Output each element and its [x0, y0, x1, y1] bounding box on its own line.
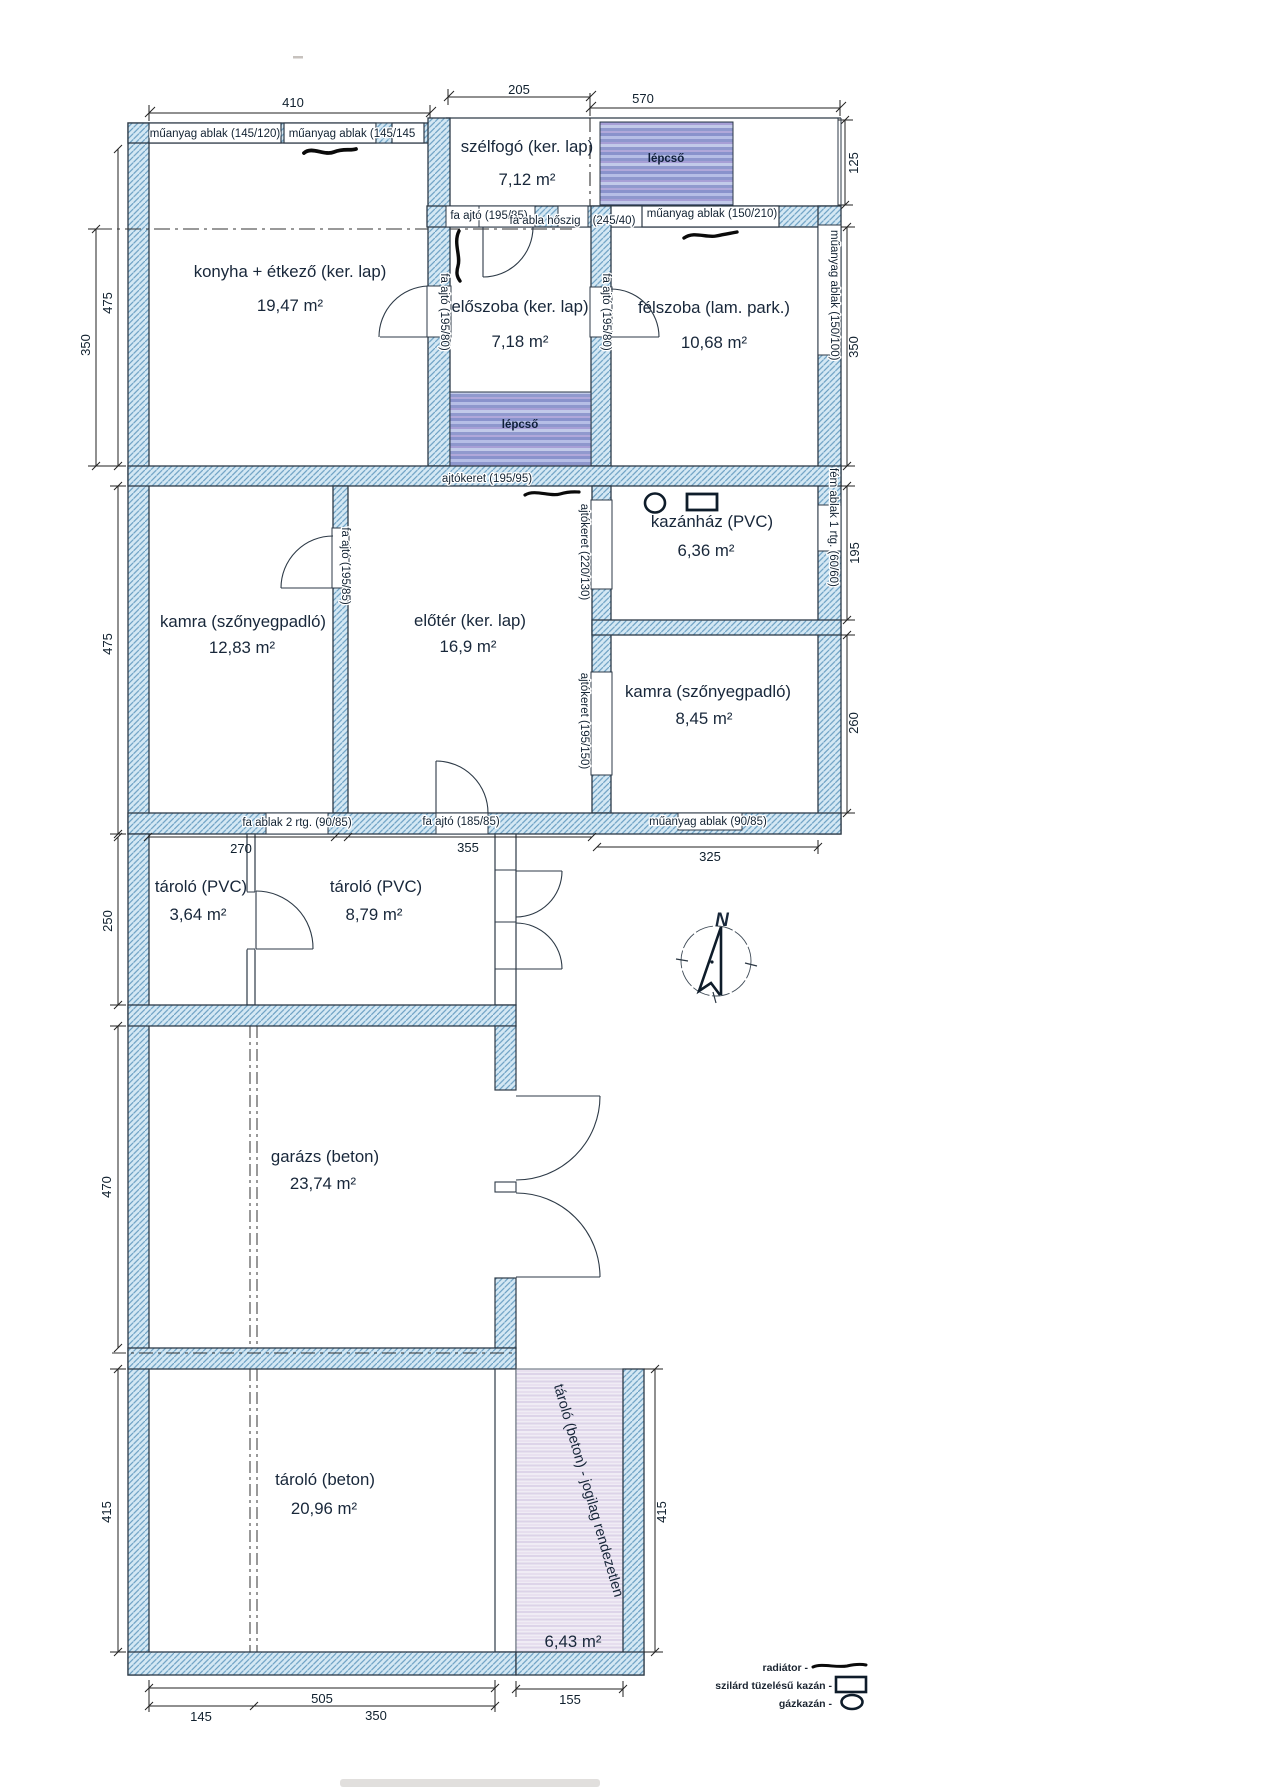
svg-text:8,79 m²: 8,79 m² [346, 905, 403, 924]
svg-text:félszoba (lam. park.): félszoba (lam. park.) [638, 298, 790, 317]
svg-text:gázkazán -: gázkazán - [779, 1698, 833, 1710]
svg-text:475: 475 [100, 633, 115, 655]
svg-text:fa ajtó (195/85): fa ajtó (195/85) [339, 527, 351, 605]
svg-text:konyha + étkező (ker. lap): konyha + étkező (ker. lap) [194, 262, 387, 281]
svg-text:szélfogó (ker. lap): szélfogó (ker. lap) [461, 137, 593, 156]
svg-text:415: 415 [99, 1501, 114, 1523]
svg-text:20,96 m²: 20,96 m² [291, 1499, 358, 1518]
svg-text:előtér (ker. lap): előtér (ker. lap) [414, 611, 526, 630]
svg-text:350: 350 [78, 334, 93, 356]
svg-text:garázs (beton): garázs (beton) [271, 1147, 379, 1166]
svg-text:műanyag ablak (150/210): műanyag ablak (150/210) [647, 208, 778, 220]
svg-text:6,43 m²: 6,43 m² [545, 1632, 602, 1651]
svg-text:ajtókeret (195/150): ajtókeret (195/150) [578, 673, 590, 770]
svg-text:tároló (PVC): tároló (PVC) [330, 877, 422, 896]
svg-text:kamra (szőnyegpadló): kamra (szőnyegpadló) [625, 682, 791, 701]
svg-text:270: 270 [230, 841, 252, 856]
svg-text:ajtókeret (195/95): ajtókeret (195/95) [442, 473, 532, 485]
svg-text:kamra (szőnyegpadló): kamra (szőnyegpadló) [160, 612, 326, 631]
svg-text:7,12 m²: 7,12 m² [499, 170, 556, 189]
svg-text:19,47 m²: 19,47 m² [257, 296, 324, 315]
svg-text:475: 475 [100, 292, 115, 314]
svg-text:tároló (PVC): tároló (PVC) [155, 877, 247, 896]
svg-text:fa ajtó (195/80): fa ajtó (195/80) [600, 273, 612, 351]
svg-text:fa abla hőszig: fa abla hőszig [510, 215, 581, 227]
svg-text:470: 470 [99, 1176, 114, 1198]
svg-text:23,74 m²: 23,74 m² [290, 1174, 357, 1193]
svg-text:350: 350 [846, 336, 861, 358]
svg-text:fém ablak 1 rtg. (60/60): fém ablak 1 rtg. (60/60) [827, 468, 839, 587]
svg-text:16,9 m²: 16,9 m² [440, 637, 497, 656]
svg-text:előszoba (ker. lap): előszoba (ker. lap) [451, 297, 588, 316]
svg-text:fa ablak 2 rtg. (90/85): fa ablak 2 rtg. (90/85) [242, 817, 351, 829]
svg-text:12,83 m²: 12,83 m² [209, 638, 276, 657]
svg-text:lépcső: lépcső [648, 153, 684, 165]
svg-text:szilárd tüzelésű kazán -: szilárd tüzelésű kazán - [715, 1680, 832, 1692]
svg-text:fa ajtó (195/80): fa ajtó (195/80) [438, 273, 450, 351]
svg-text:250: 250 [100, 910, 115, 932]
svg-text:6,36 m²: 6,36 m² [678, 541, 735, 560]
svg-text:7,18 m²: 7,18 m² [492, 332, 549, 351]
svg-text:fa ajtó (185/85): fa ajtó (185/85) [422, 816, 500, 828]
svg-text:570: 570 [632, 91, 654, 106]
svg-text:355: 355 [457, 840, 479, 855]
svg-text:325: 325 [699, 849, 721, 864]
svg-text:145: 145 [190, 1709, 212, 1724]
svg-text:lépcső: lépcső [502, 419, 538, 431]
svg-text:195: 195 [847, 542, 862, 564]
svg-text:3,64 m²: 3,64 m² [170, 905, 227, 924]
svg-text:műanyag ablak (145/145: műanyag ablak (145/145 [289, 128, 416, 140]
svg-text:műanyag ablak (145/120): műanyag ablak (145/120) [150, 128, 281, 140]
svg-text:tároló (beton): tároló (beton) [275, 1470, 375, 1489]
svg-text:radiátor -: radiátor - [762, 1662, 808, 1674]
svg-text:ajtókeret (220/130): ajtókeret (220/130) [578, 504, 590, 601]
svg-text:415: 415 [654, 1501, 669, 1523]
svg-text:(245/40): (245/40) [593, 215, 636, 227]
svg-text:kazánház (PVC): kazánház (PVC) [651, 512, 773, 531]
svg-text:410: 410 [282, 95, 304, 110]
svg-text:205: 205 [508, 82, 530, 97]
svg-text:N: N [715, 910, 730, 931]
svg-text:260: 260 [846, 712, 861, 734]
svg-text:505: 505 [311, 1691, 333, 1706]
svg-text:10,68 m²: 10,68 m² [681, 333, 748, 352]
svg-text:125: 125 [846, 152, 861, 174]
svg-text:műanyag ablak (150/100): műanyag ablak (150/100) [828, 230, 840, 361]
svg-text:155: 155 [559, 1692, 581, 1707]
svg-text:350: 350 [365, 1708, 387, 1723]
svg-text:műanyag ablak (90/85): műanyag ablak (90/85) [649, 816, 767, 828]
svg-text:8,45 m²: 8,45 m² [676, 709, 733, 728]
